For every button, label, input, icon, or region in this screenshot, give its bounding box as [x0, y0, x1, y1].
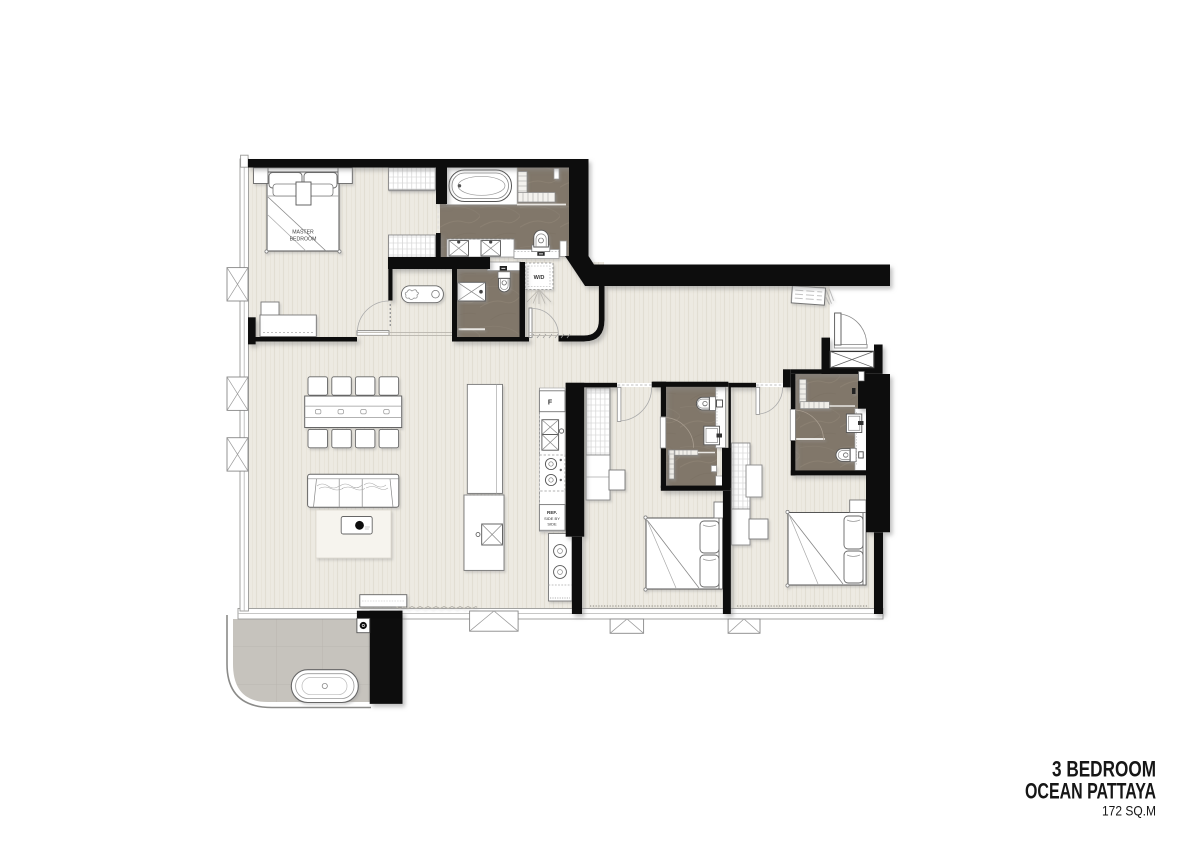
- svg-text:W/D: W/D: [534, 275, 545, 281]
- svg-text:F: F: [548, 400, 553, 407]
- svg-text:BEDROOM: BEDROOM: [290, 237, 317, 243]
- svg-text:172 SQ.M: 172 SQ.M: [1102, 803, 1156, 819]
- svg-text:REF.: REF.: [547, 510, 557, 515]
- svg-text:SIDE: SIDE: [547, 521, 557, 526]
- svg-text:MASTER: MASTER: [292, 230, 314, 236]
- svg-text:OCEAN PATTAYA: OCEAN PATTAYA: [1025, 779, 1156, 804]
- svg-text:SIDE BY: SIDE BY: [544, 516, 560, 521]
